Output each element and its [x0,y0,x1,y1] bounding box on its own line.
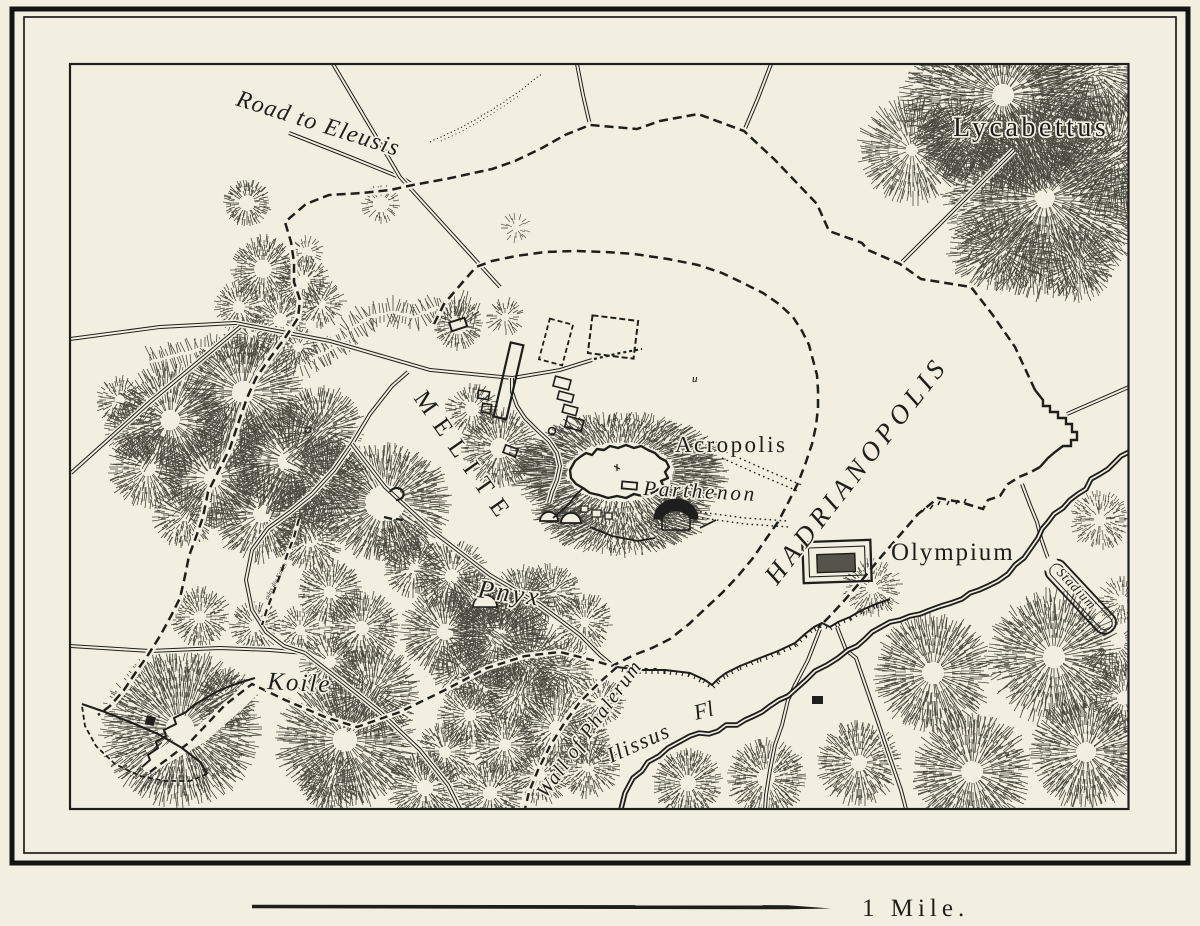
svg-text:u: u [692,373,698,385]
svg-text:Olympium: Olympium [891,539,1015,566]
svg-text:Lycabettus: Lycabettus [953,112,1109,143]
svg-text:Koile: Koile [266,668,332,698]
svg-text:Acropolis: Acropolis [675,432,787,457]
svg-text:1 Mile.: 1 Mile. [862,895,969,922]
